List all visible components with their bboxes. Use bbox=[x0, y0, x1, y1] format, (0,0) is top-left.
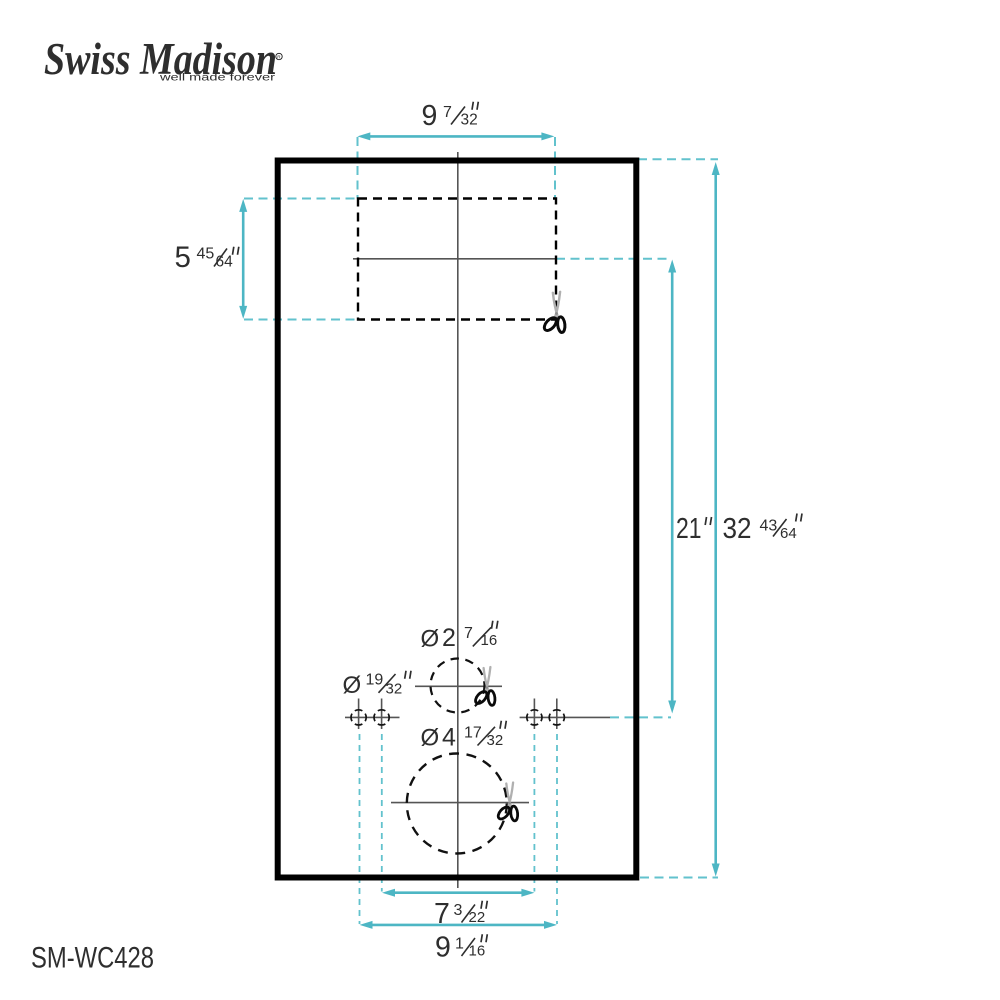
svg-text:Ø: Ø bbox=[343, 672, 362, 699]
svg-text:19: 19 bbox=[366, 672, 384, 689]
svg-text:32: 32 bbox=[487, 732, 504, 749]
svg-text:16: 16 bbox=[469, 943, 486, 960]
svg-text:2: 2 bbox=[442, 624, 456, 652]
svg-text:Ø: Ø bbox=[421, 626, 440, 653]
svg-text:7: 7 bbox=[443, 104, 452, 121]
svg-text:1: 1 bbox=[455, 936, 464, 953]
svg-text:7: 7 bbox=[464, 625, 473, 642]
svg-text:64: 64 bbox=[780, 525, 797, 542]
svg-text:45: 45 bbox=[197, 246, 215, 263]
svg-text:well made forever: well made forever bbox=[159, 72, 276, 84]
svg-text:16: 16 bbox=[481, 632, 498, 649]
svg-text:5: 5 bbox=[175, 241, 191, 274]
svg-text:17: 17 bbox=[464, 725, 482, 742]
svg-text:22: 22 bbox=[469, 909, 486, 926]
svg-text:32: 32 bbox=[461, 112, 478, 129]
svg-text:9: 9 bbox=[422, 100, 438, 132]
svg-text:4: 4 bbox=[442, 724, 456, 752]
svg-text:SM-WC428: SM-WC428 bbox=[31, 942, 154, 975]
svg-text:32: 32 bbox=[386, 681, 403, 698]
svg-text:64: 64 bbox=[216, 254, 234, 271]
svg-text:7: 7 bbox=[434, 898, 450, 930]
svg-text:21: 21 bbox=[676, 513, 702, 545]
svg-text:32: 32 bbox=[723, 513, 752, 545]
svg-text:3: 3 bbox=[454, 902, 463, 919]
svg-text:9: 9 bbox=[435, 932, 451, 964]
svg-text:Ø: Ø bbox=[421, 725, 440, 752]
svg-text:43: 43 bbox=[760, 518, 778, 535]
